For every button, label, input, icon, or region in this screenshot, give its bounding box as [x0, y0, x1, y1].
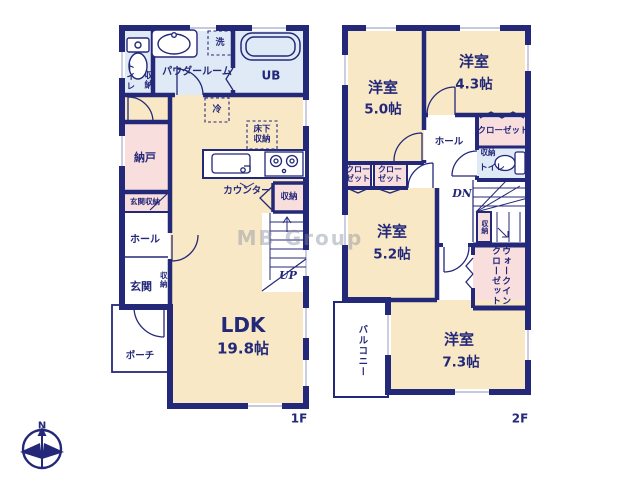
- room-label-entrance-storage: 玄関収納: [130, 198, 160, 206]
- room-label-hall-2f: ホール: [435, 138, 464, 149]
- room-label-closet-1: クロー ゼット: [346, 166, 370, 184]
- room-label-toilet-storage: 収納: [142, 71, 152, 90]
- room-label-fridge: 冷: [212, 105, 221, 115]
- room-label-walk-in-closet: ウォークイン クローゼット: [490, 246, 510, 306]
- room-label-stair-storage: 収納: [480, 220, 488, 234]
- room-label-nando: 納戸: [134, 152, 156, 164]
- room-size-bedroom-b: 4.3帖: [455, 77, 492, 92]
- room-label-bedroom-c: 洋室: [377, 224, 407, 241]
- compass-north-label: N: [38, 420, 46, 431]
- room-label-entrance: 玄関: [130, 281, 152, 293]
- room-label-toilet-1f: トイレ: [124, 63, 134, 92]
- floorplan-page: トイレ 収納 パウダールーム 洗 UB 冷 床下 収納 納戸 玄関収納 ホール …: [0, 0, 640, 480]
- room-label-bedroom-d: 洋室: [444, 332, 474, 349]
- room-label-bedroom-a: 洋室: [368, 80, 398, 97]
- room-size-bedroom-a: 5.0帖: [364, 102, 401, 117]
- room-label-hall-1f: ホール: [130, 234, 160, 245]
- room-label-counter: カウンター: [223, 187, 271, 198]
- kitchen-counter: [203, 150, 306, 178]
- room-label-ldk: LDK: [221, 314, 266, 336]
- stairs-down-label: DN: [452, 188, 472, 200]
- room-label-entrance-side-storage: 収納: [159, 272, 167, 289]
- compass-icon: [20, 427, 64, 468]
- room-label-bedroom-b: 洋室: [459, 54, 489, 71]
- room-label-kitchen-storage: 収納: [280, 193, 297, 203]
- room-label-unit-bath: UB: [262, 69, 281, 82]
- room-size-bedroom-d: 7.3帖: [442, 355, 479, 370]
- room-label-powder-room: パウダールーム: [162, 66, 232, 77]
- room-label-floor-storage: 床下 収納: [253, 125, 270, 144]
- floor2-label: 2F: [512, 412, 529, 425]
- floor1-label: 1F: [291, 412, 308, 425]
- room-label-toilet-2f: トイレ: [479, 164, 505, 174]
- room-size-bedroom-c: 5.2帖: [373, 247, 410, 262]
- stairs-up-label: UP: [279, 270, 297, 282]
- room-label-porch: ポーチ: [126, 352, 155, 363]
- room-label-toilet-storage-2f: 収納: [481, 149, 496, 157]
- watermark: MB Group: [237, 227, 364, 249]
- room-label-closet-2: クロー ゼット: [378, 166, 402, 184]
- room-label-balcony: バルコニー: [356, 325, 367, 378]
- room-size-ldk: 19.8帖: [217, 341, 269, 358]
- sink-icon: [152, 30, 197, 57]
- room-label-closet-top: クローゼット: [477, 127, 528, 137]
- floor1-room-fills: [112, 28, 306, 406]
- room-label-laundry: 洗: [215, 38, 224, 48]
